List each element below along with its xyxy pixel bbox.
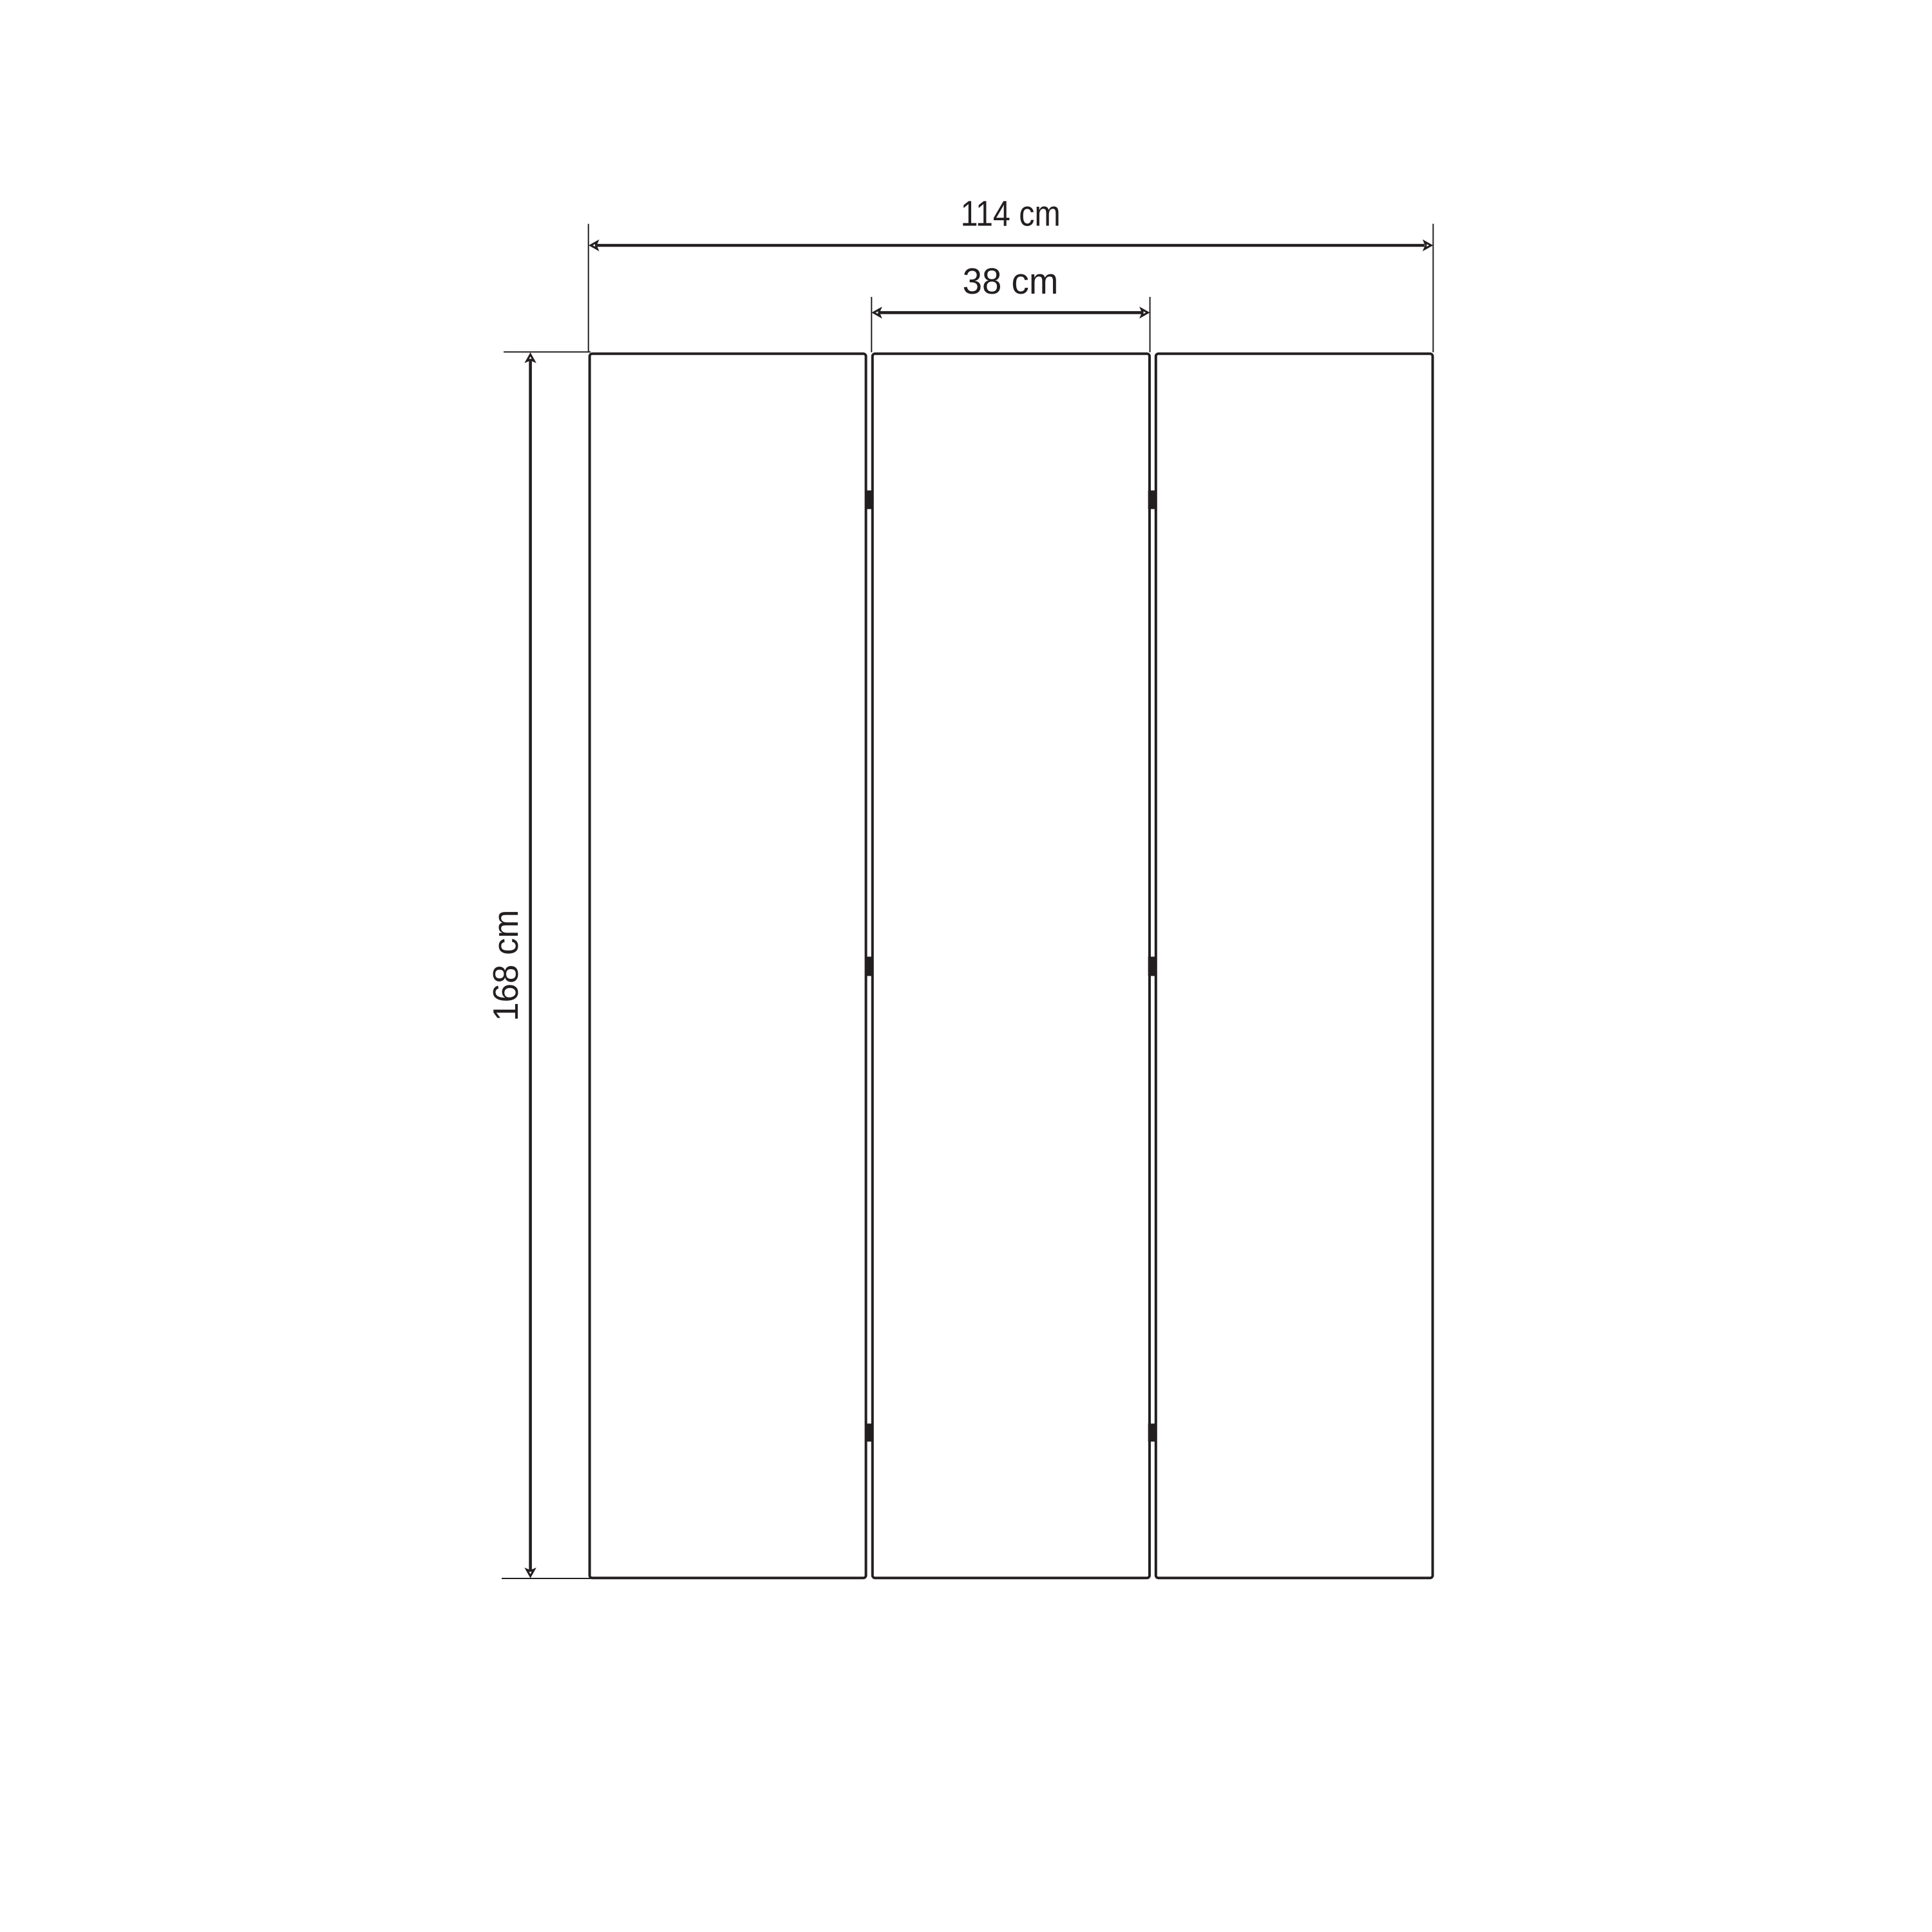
- svg-text:38 cm: 38 cm: [963, 261, 1059, 301]
- svg-text:168 cm: 168 cm: [486, 910, 526, 1021]
- svg-text:114 cm: 114 cm: [961, 194, 1061, 234]
